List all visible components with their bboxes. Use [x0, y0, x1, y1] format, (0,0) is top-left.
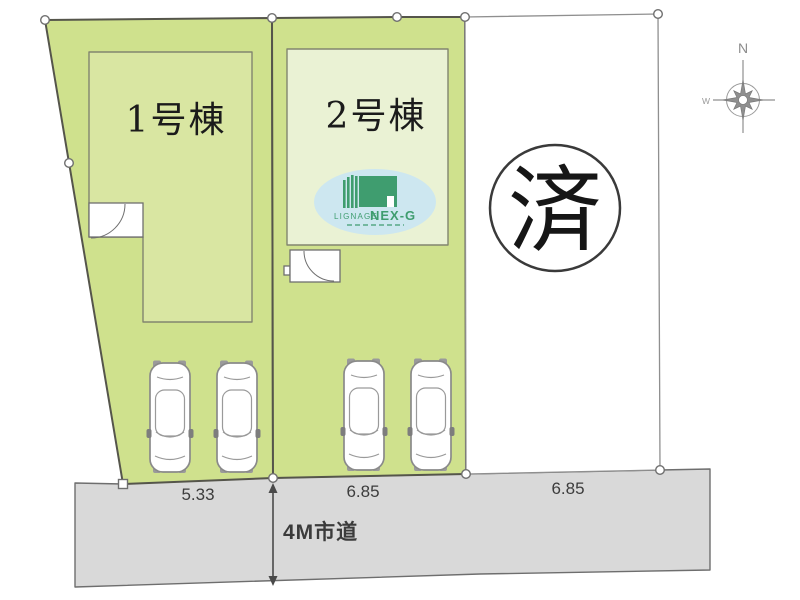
- boundary-marker: [393, 13, 402, 22]
- boundary-marker: [269, 474, 278, 483]
- door-step: [284, 266, 290, 275]
- sold-stamp-text: 済: [508, 157, 602, 266]
- door-frame: [89, 203, 143, 237]
- lot-3: 済: [465, 14, 660, 474]
- entrance-door-icon: [284, 250, 340, 282]
- logo-brand-name: NEX-G: [370, 208, 416, 223]
- site-plan-drawing: 1号棟 2号棟 LIGNAGE NEX-G: [0, 0, 800, 600]
- boundary-marker: [41, 16, 50, 25]
- road-area: [75, 469, 710, 587]
- boundary-marker: [268, 14, 277, 23]
- boundary-marker: [654, 10, 663, 19]
- lot-1-label: 1号棟: [126, 100, 227, 141]
- logo-building-door: [387, 196, 394, 207]
- lignage-nexg-logo: LIGNAGE NEX-G: [314, 169, 436, 235]
- boundary-marker: [65, 159, 74, 168]
- car-icon: [147, 361, 194, 474]
- car-icon: [214, 361, 261, 474]
- lot-3-frontage: 6.85: [551, 479, 584, 498]
- compass-west-label: W: [702, 96, 710, 106]
- road-width-label: 4M市道: [283, 520, 358, 544]
- car-icon: [408, 359, 455, 472]
- compass-north-label: N: [738, 40, 748, 56]
- boundary-marker: [656, 466, 665, 475]
- lot-1-frontage: 5.33: [181, 485, 214, 504]
- site-plan-canvas: 1号棟 2号棟 LIGNAGE NEX-G: [0, 0, 800, 600]
- boundary-marker: [462, 470, 471, 479]
- lot-2-frontage: 6.85: [346, 482, 379, 501]
- sold-stamp: 済: [490, 145, 620, 271]
- compass-rose-icon: N W: [702, 40, 775, 133]
- lot-2-label: 2号棟: [326, 96, 427, 137]
- door-frame: [290, 250, 340, 282]
- car-icon: [341, 359, 388, 472]
- compass-hub: [739, 96, 748, 105]
- entrance-door-icon: [89, 203, 143, 238]
- boundary-marker: [119, 480, 128, 489]
- boundary-marker: [461, 13, 470, 22]
